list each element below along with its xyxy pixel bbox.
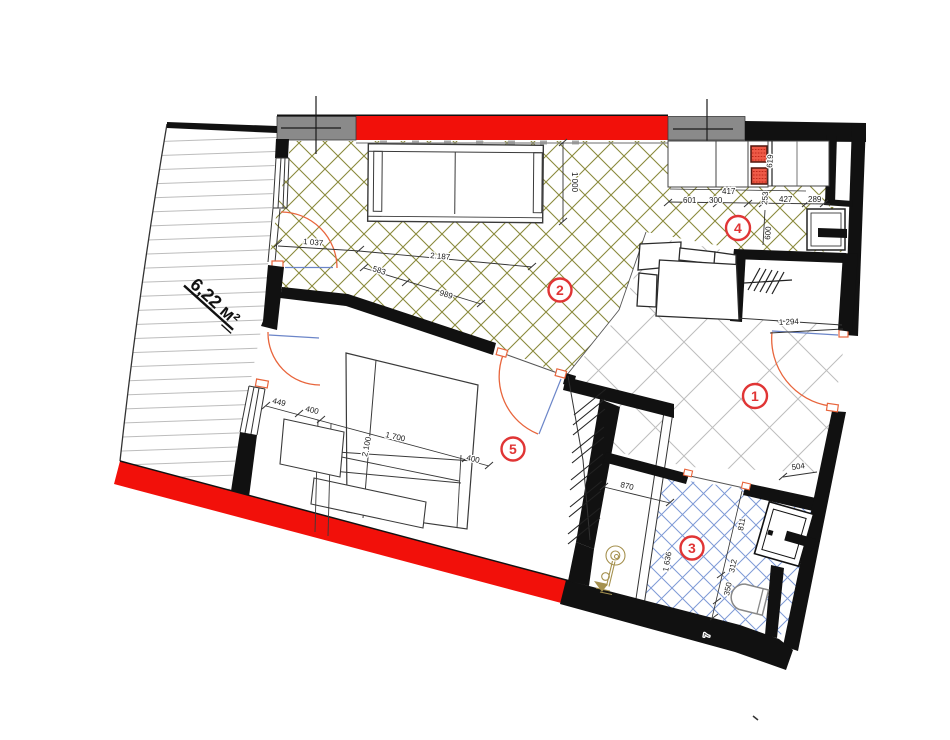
svg-text:289: 289 <box>808 195 822 204</box>
svg-text:427: 427 <box>779 195 793 204</box>
svg-text:504: 504 <box>791 461 806 472</box>
svg-text:3: 3 <box>688 540 696 556</box>
svg-text:5: 5 <box>509 441 517 457</box>
svg-text:2 187: 2 187 <box>430 251 451 262</box>
svg-text:600: 600 <box>763 226 773 241</box>
svg-text:1 037: 1 037 <box>303 237 324 248</box>
svg-text:449: 449 <box>272 396 288 408</box>
svg-text:1 000: 1 000 <box>570 172 579 193</box>
svg-text:2: 2 <box>556 282 564 298</box>
svg-text:417: 417 <box>722 187 736 196</box>
svg-text:1 294: 1 294 <box>779 317 800 327</box>
svg-text:870: 870 <box>620 480 636 492</box>
svg-text:1: 1 <box>751 388 759 404</box>
svg-text:601: 601 <box>683 196 697 205</box>
svg-text:400: 400 <box>305 404 321 416</box>
svg-text:619: 619 <box>765 154 775 169</box>
svg-text:253: 253 <box>760 191 770 206</box>
svg-text:300: 300 <box>709 196 723 205</box>
svg-text:4: 4 <box>734 220 742 236</box>
